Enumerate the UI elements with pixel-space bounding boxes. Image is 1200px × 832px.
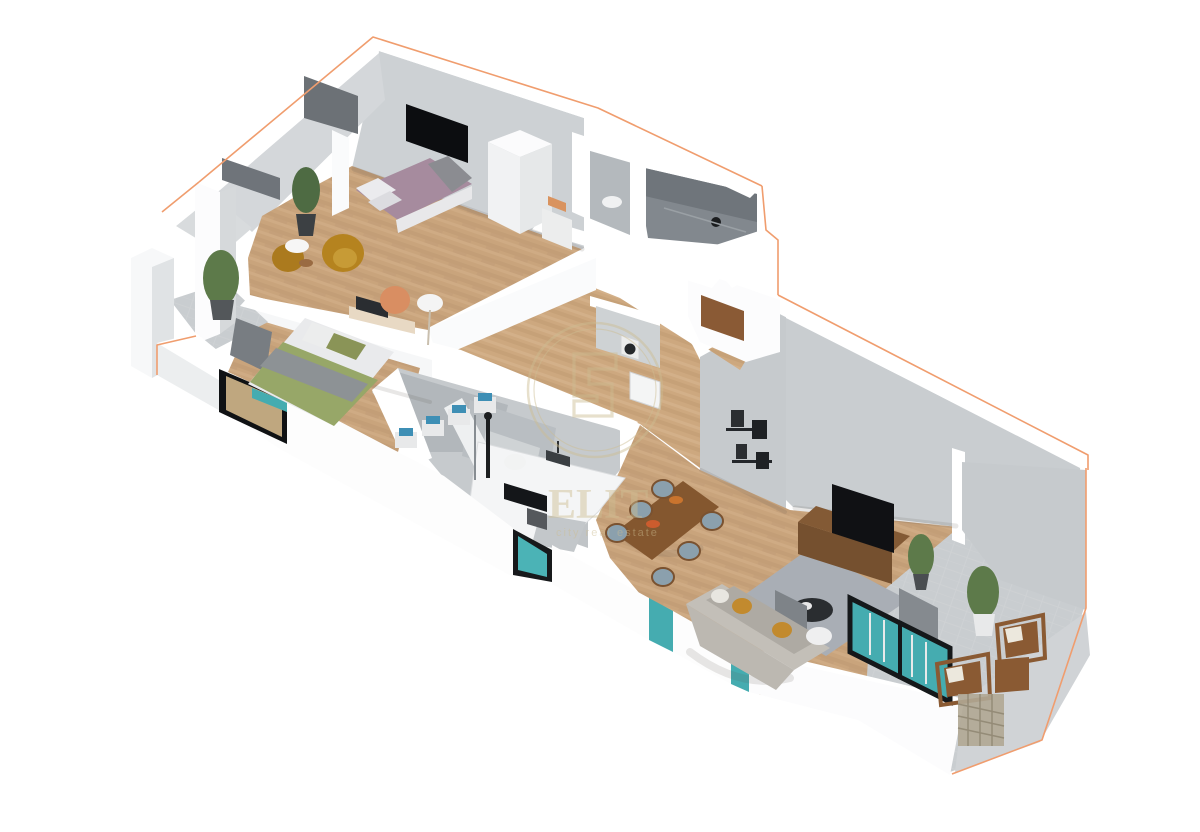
svg-text:city real estate: city real estate [556, 527, 659, 539]
svg-text:ELIT: ELIT [548, 482, 648, 528]
